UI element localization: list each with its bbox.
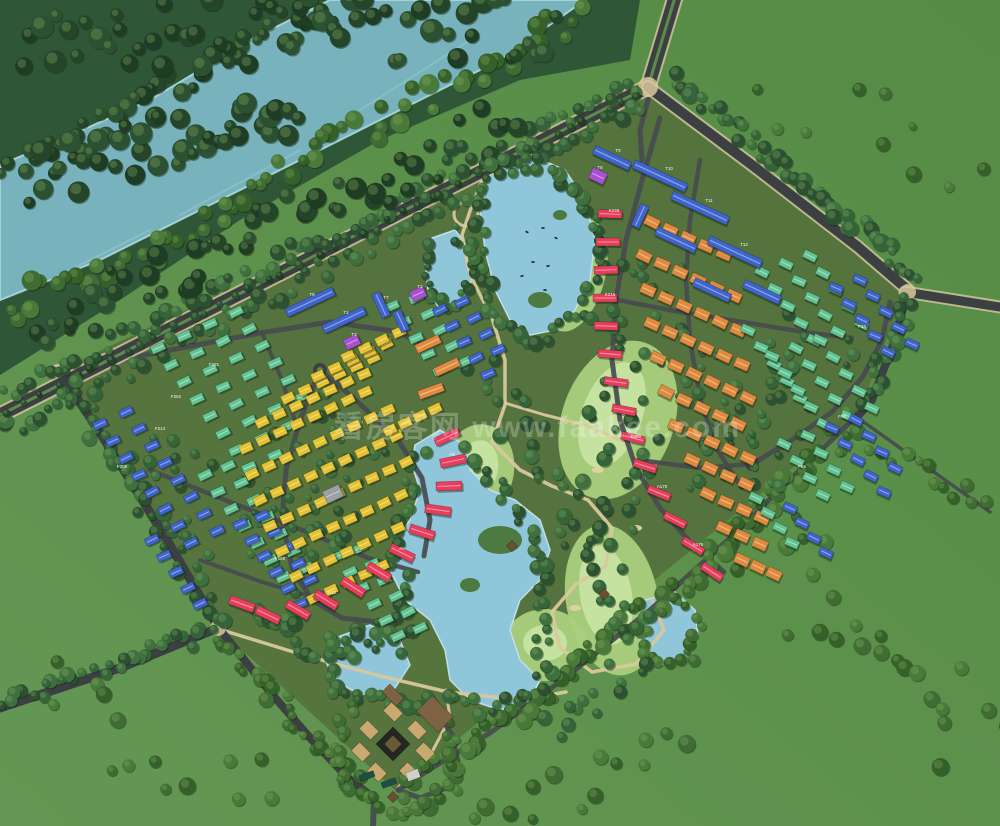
unit-label: T6 xyxy=(309,292,315,297)
unit-label: T11 xyxy=(705,198,713,203)
unit-label: T9 xyxy=(615,148,621,153)
building xyxy=(594,266,620,277)
unit-label: T1 xyxy=(343,310,349,315)
unit-label: K246 xyxy=(609,208,620,213)
unit-label: T3 xyxy=(351,332,357,337)
unit-label: T2 xyxy=(417,284,423,289)
unit-label: T12 xyxy=(740,242,748,247)
unit-label: F55 xyxy=(798,464,806,469)
unit-label: F262 xyxy=(171,394,182,399)
unit-label: T10 xyxy=(665,166,673,171)
building xyxy=(594,322,620,333)
unit-label: K216 xyxy=(605,292,616,297)
unit-label: A12 xyxy=(328,590,337,595)
master-plan-canvas: T6T1T7T2T3T9T10T11T12T8F262F231F208F214F… xyxy=(0,0,1000,826)
unit-label: A5 xyxy=(449,452,455,457)
unit-label: K190 xyxy=(631,434,642,439)
site-plan-stage: T6T1T7T2T3T9T10T11T12T8F262F231F208F214F… xyxy=(0,0,1000,826)
unit-label: F188 xyxy=(275,556,286,561)
unit-label: F231 xyxy=(209,362,220,367)
unit-label: T8 xyxy=(597,165,603,170)
unit-label: F208 xyxy=(117,464,128,469)
unit-label: A176 xyxy=(693,542,704,547)
building xyxy=(596,238,622,248)
unit-label: F214 xyxy=(155,426,166,431)
unit-label: F76 xyxy=(838,414,846,419)
building xyxy=(436,481,464,493)
unit-label: F33 xyxy=(858,324,866,329)
unit-label: A170 xyxy=(657,484,668,489)
unit-label: A9 xyxy=(399,546,405,551)
unit-label: T7 xyxy=(383,295,389,300)
